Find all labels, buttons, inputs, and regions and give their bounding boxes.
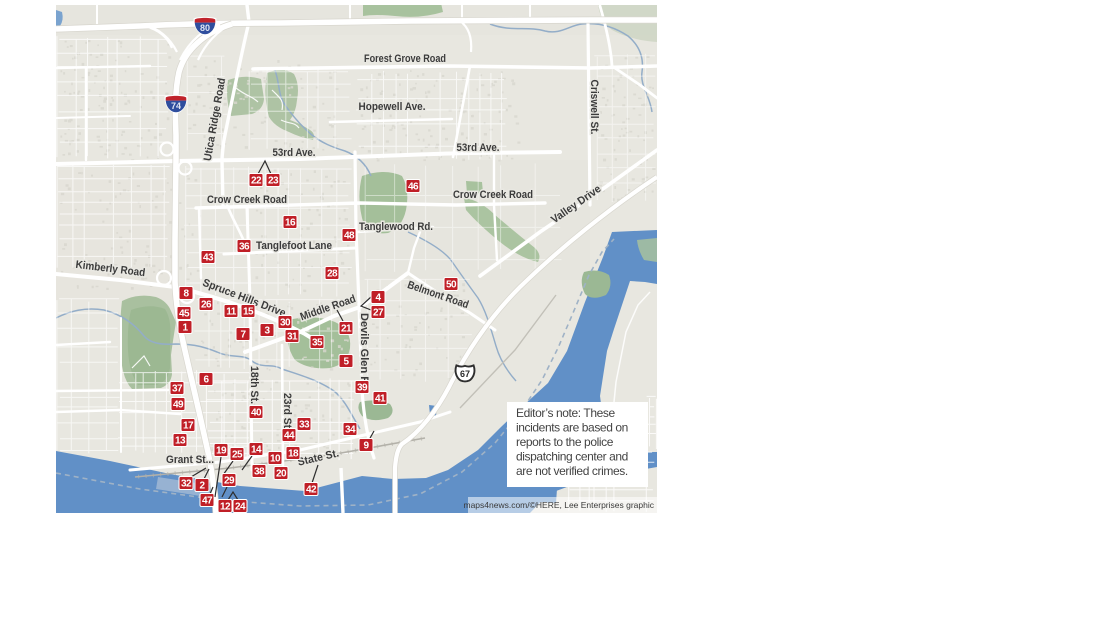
svg-text:35: 35 [312, 338, 323, 349]
svg-text:41: 41 [375, 394, 386, 405]
svg-text:are not verified crimes.: are not verified crimes. [516, 464, 628, 478]
svg-text:43: 43 [203, 253, 214, 264]
svg-text:Devils Glen Rd: Devils Glen Rd [358, 313, 370, 391]
svg-text:14: 14 [251, 445, 262, 456]
svg-text:49: 49 [173, 400, 184, 411]
svg-text:Crow Creek Road: Crow Creek Road [207, 194, 287, 206]
svg-text:46: 46 [408, 182, 419, 193]
svg-text:25: 25 [232, 450, 243, 461]
svg-text:38: 38 [254, 467, 265, 478]
svg-text:42: 42 [306, 485, 317, 496]
svg-text:30: 30 [280, 318, 291, 329]
svg-text:23rd St.: 23rd St. [281, 393, 293, 431]
svg-text:31: 31 [287, 332, 298, 343]
svg-text:74: 74 [171, 101, 181, 111]
svg-text:13: 13 [175, 436, 186, 447]
svg-text:32: 32 [181, 479, 192, 490]
svg-text:18: 18 [288, 449, 299, 460]
svg-text:16: 16 [285, 218, 296, 229]
svg-text:incidents are based on: incidents are based on [516, 421, 628, 435]
svg-text:dispatching center and: dispatching center and [516, 450, 628, 464]
svg-text:47: 47 [202, 496, 213, 507]
svg-text:10: 10 [270, 454, 281, 465]
svg-text:Forest Grove Road: Forest Grove Road [364, 53, 446, 65]
svg-text:33: 33 [299, 420, 310, 431]
svg-text:44: 44 [284, 431, 295, 442]
svg-text:29: 29 [224, 476, 235, 487]
svg-text:Grant St...: Grant St... [166, 454, 214, 466]
svg-text:21: 21 [341, 324, 352, 335]
svg-text:Hopewell Ave.: Hopewell Ave. [359, 101, 426, 113]
svg-text:17: 17 [183, 421, 194, 432]
svg-text:Editor’s note: These: Editor’s note: These [516, 406, 615, 420]
svg-text:Criswell St.: Criswell St. [588, 80, 600, 135]
svg-text:maps4news.com/©HERE, Lee Enter: maps4news.com/©HERE, Lee Enterprises gra… [463, 500, 654, 510]
svg-text:40: 40 [251, 408, 262, 419]
svg-text:15: 15 [243, 307, 254, 318]
svg-text:36: 36 [239, 242, 250, 253]
svg-text:37: 37 [172, 384, 183, 395]
svg-text:28: 28 [327, 269, 338, 280]
svg-text:12: 12 [220, 502, 231, 513]
svg-text:67: 67 [460, 369, 470, 379]
svg-text:48: 48 [344, 231, 355, 242]
svg-text:80: 80 [200, 23, 210, 33]
svg-text:24: 24 [235, 502, 246, 513]
svg-text:Tanglewood Rd.: Tanglewood Rd. [359, 221, 433, 233]
svg-text:27: 27 [373, 308, 384, 319]
svg-text:22: 22 [251, 176, 262, 187]
svg-text:20: 20 [276, 469, 287, 480]
svg-text:Crow Creek Road: Crow Creek Road [453, 189, 533, 201]
svg-text:45: 45 [179, 309, 190, 320]
svg-text:53rd Ave.: 53rd Ave. [457, 142, 500, 154]
svg-text:39: 39 [357, 383, 368, 394]
svg-text:19: 19 [216, 446, 227, 457]
svg-text:50: 50 [446, 280, 457, 291]
svg-text:23: 23 [268, 176, 279, 187]
svg-text:11: 11 [226, 307, 237, 318]
svg-text:Tanglefoot Lane: Tanglefoot Lane [256, 240, 332, 252]
svg-text:34: 34 [345, 425, 356, 436]
svg-text:18th St.: 18th St. [248, 366, 260, 404]
svg-text:26: 26 [201, 300, 212, 311]
svg-text:reports to the police: reports to the police [516, 435, 614, 449]
svg-text:53rd Ave.: 53rd Ave. [273, 147, 316, 159]
